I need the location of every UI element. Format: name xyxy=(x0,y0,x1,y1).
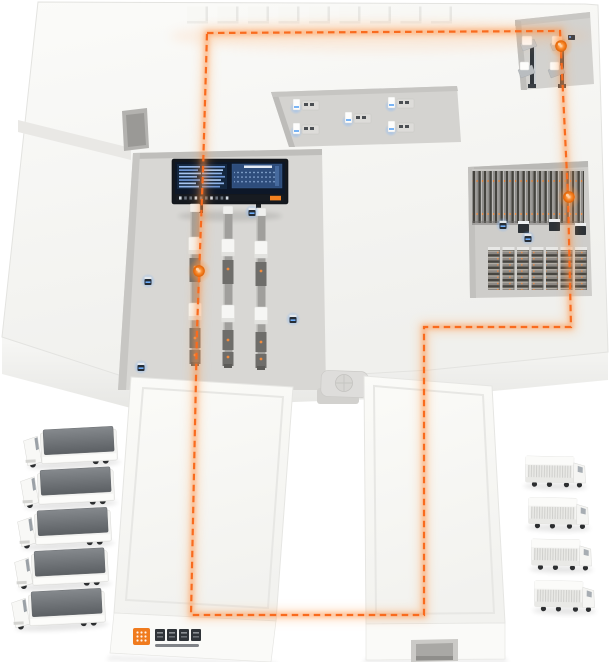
roof-dock-opening xyxy=(126,113,146,147)
route-marker-machining-bay xyxy=(549,34,573,58)
rack-tower xyxy=(532,250,544,290)
trailer-top xyxy=(37,507,108,536)
trailer-top xyxy=(34,548,105,577)
delivery-truck xyxy=(11,588,109,633)
logo-glyph-block xyxy=(179,629,189,641)
route-marker-storage-bay xyxy=(557,185,581,209)
logo-subtext-line xyxy=(155,644,199,647)
van-cab xyxy=(579,546,591,566)
trailer-top xyxy=(43,426,114,455)
truck-fleet-left xyxy=(11,426,121,633)
route-marker-production-line xyxy=(187,259,211,283)
box-van xyxy=(526,497,591,532)
box-van xyxy=(532,580,597,615)
rack-tower xyxy=(517,250,529,290)
delivery-truck xyxy=(17,507,115,552)
isometric-illustration xyxy=(0,0,615,662)
dock-door xyxy=(187,7,208,24)
rack-tower xyxy=(488,250,500,290)
dock-door xyxy=(218,7,239,24)
van-cab xyxy=(576,504,588,524)
dashboard-ticker xyxy=(176,195,284,201)
van-cab xyxy=(582,587,594,607)
delivery-truck xyxy=(23,426,121,471)
logo-glyph-block xyxy=(167,629,177,641)
logo-glyph-block xyxy=(155,629,165,641)
iot-sensor xyxy=(134,360,149,375)
delivery-truck xyxy=(14,547,112,592)
trailer-top xyxy=(40,467,111,496)
right-wing-door-threshold xyxy=(416,656,453,660)
box-van xyxy=(523,456,588,491)
agv-cart xyxy=(575,226,586,235)
logo-glyph-block xyxy=(191,629,201,641)
agv-cart xyxy=(549,222,560,231)
iot-sensor xyxy=(496,218,511,233)
iot-sensor xyxy=(141,274,156,289)
iot-sensor xyxy=(521,231,536,246)
trailer-top xyxy=(31,588,102,617)
smart-warehouse-scene xyxy=(0,0,615,662)
delivery-truck xyxy=(20,466,118,511)
rack-tower xyxy=(575,250,587,290)
dock-door xyxy=(279,7,300,24)
van-cab xyxy=(573,463,585,483)
rack-tower xyxy=(546,250,558,290)
dashboard-ticker-accent xyxy=(270,196,281,201)
box-van xyxy=(529,539,594,574)
rack-tower xyxy=(503,250,515,290)
iot-sensor xyxy=(286,312,301,327)
truck-fleet-right xyxy=(523,456,597,615)
dock-door xyxy=(248,7,269,24)
iot-sensor xyxy=(245,205,260,220)
